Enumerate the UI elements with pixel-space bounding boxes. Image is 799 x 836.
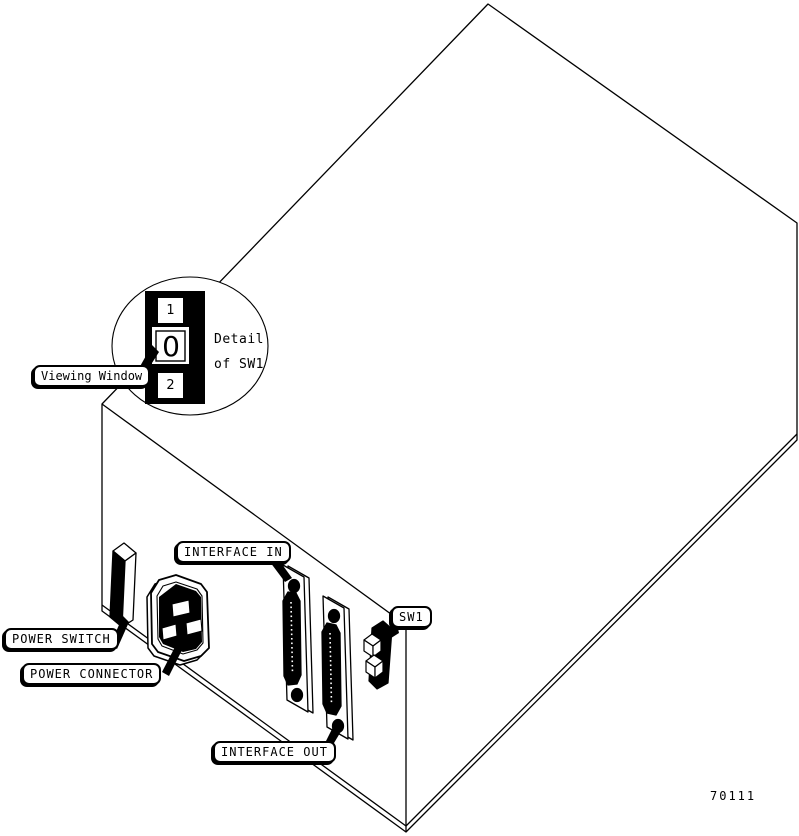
device-box bbox=[102, 4, 797, 832]
power-connector-label: POWER CONNECTOR bbox=[22, 663, 161, 685]
sw1-label: SW1 bbox=[391, 606, 432, 628]
detail-caption-line1: Detail bbox=[209, 327, 269, 352]
interface-out-connector bbox=[322, 596, 353, 740]
interface-in-label: INTERFACE IN bbox=[176, 541, 291, 563]
interface-in-connector bbox=[283, 565, 313, 713]
figure-number: 70111 bbox=[710, 789, 756, 803]
device-box-silhouette bbox=[102, 4, 797, 832]
switch-position-0: 0 bbox=[157, 333, 185, 361]
diagram-line-art bbox=[0, 0, 799, 836]
switch-position-2: 2 bbox=[158, 379, 183, 392]
viewing-window-label: Viewing Window bbox=[33, 365, 150, 387]
switch-position-1: 1 bbox=[158, 304, 183, 317]
power-switch-graphic bbox=[110, 543, 136, 627]
technical-diagram: Viewing Window POWER SWITCH POWER CONNEC… bbox=[0, 0, 799, 836]
detail-caption-line2: of SW1 bbox=[209, 352, 269, 377]
power-switch-label: POWER SWITCH bbox=[4, 628, 119, 650]
detail-caption: Detail of SW1 bbox=[209, 327, 269, 377]
interface-out-label: INTERFACE OUT bbox=[213, 741, 336, 763]
